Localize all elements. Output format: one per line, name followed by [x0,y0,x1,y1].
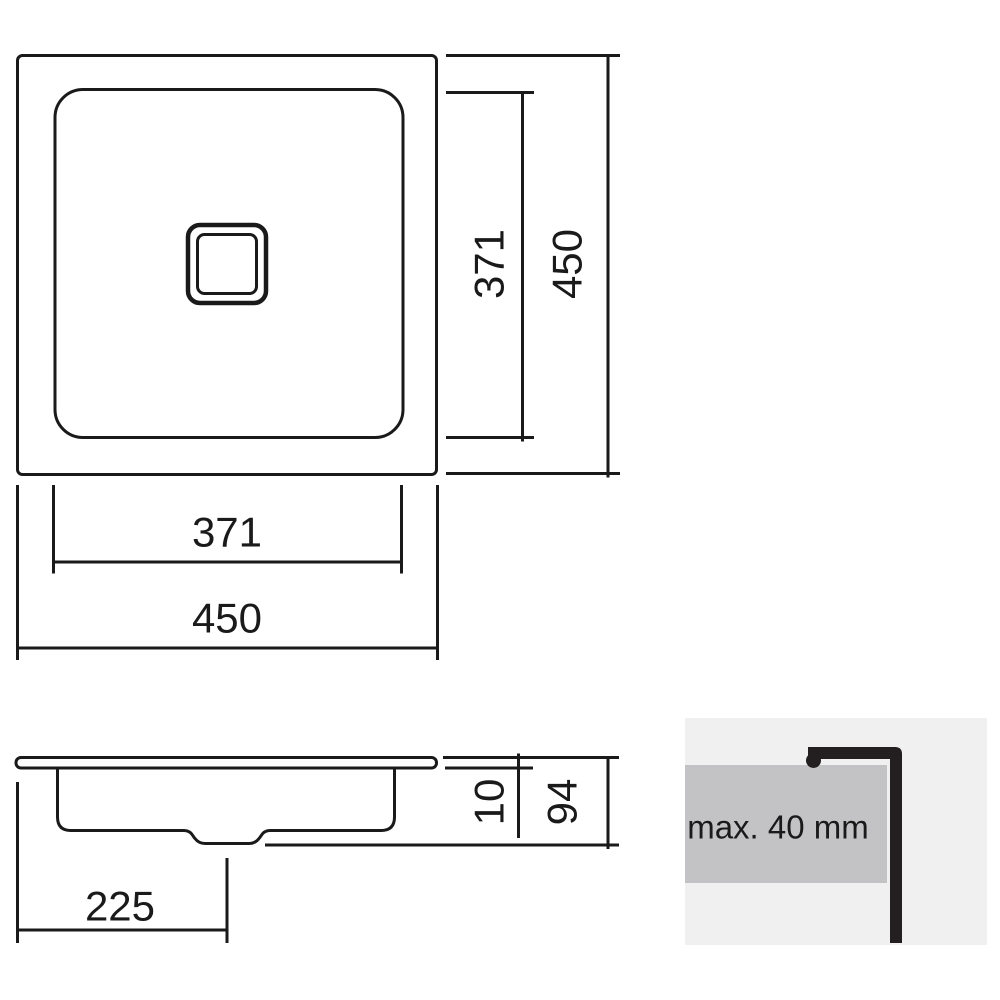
countertop-thickness-label: max. 40 mm [687,809,869,846]
dim-label-inner-height: 371 [466,229,513,299]
dim-label-inner-width: 371 [192,509,262,556]
dim-label-drain-offset: 225 [85,883,155,930]
dim-label-rim-height: 10 [466,779,513,826]
top-view-basin-outline [55,90,403,438]
section-bowl-profile [58,768,395,844]
sink-dimension-drawing-page: 371 450 371 450 225 10 94 max. 40 mm [0,0,1000,1000]
dim-label-outer-width: 450 [192,595,262,642]
top-view-outer-outline [18,56,437,475]
dimension-labels: 371 450 371 450 225 10 94 max. 40 mm [85,229,869,930]
drain-inner-outline [198,235,257,294]
sink-dimension-drawing: 371 450 371 450 225 10 94 max. 40 mm [0,0,1000,1000]
linework [16,56,620,944]
section-rim-outline [16,758,437,769]
sink-edge-profile-lip [806,753,821,768]
dim-label-depth: 94 [539,779,586,826]
dim-label-outer-height: 450 [544,229,591,299]
